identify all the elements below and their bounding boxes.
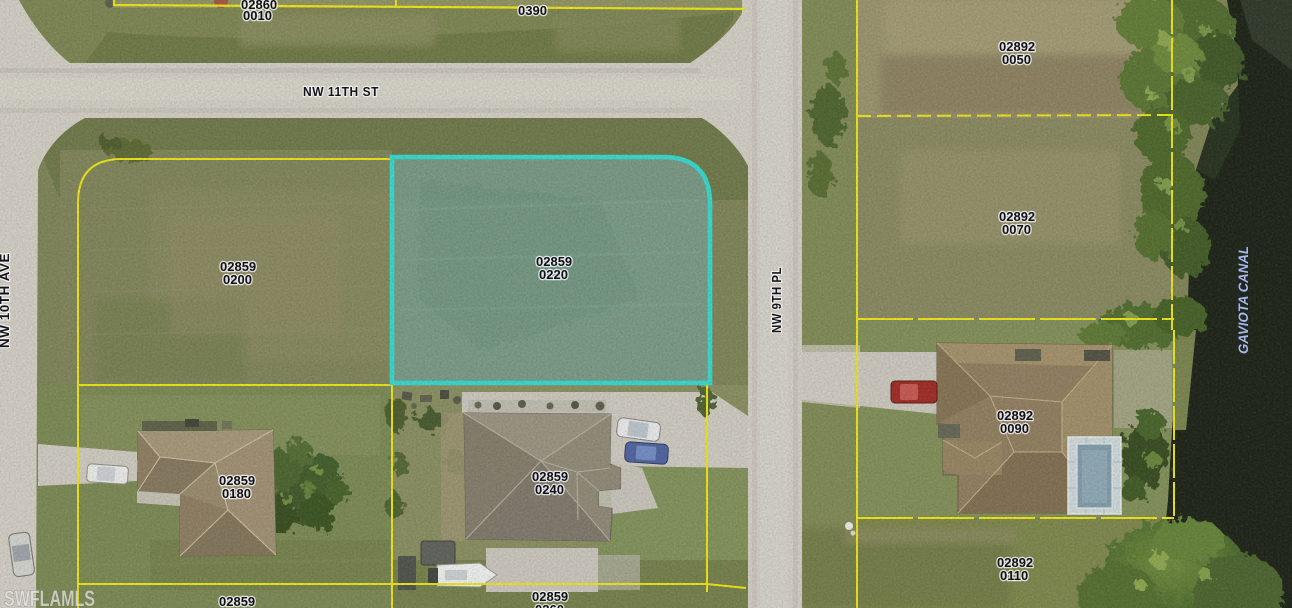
- svg-text:02859: 02859: [219, 594, 255, 608]
- svg-text:NW 11TH ST: NW 11TH ST: [303, 84, 379, 99]
- svg-text:0110: 0110: [1000, 568, 1028, 583]
- svg-text:SWFLAMLS: SWFLAMLS: [4, 586, 95, 608]
- svg-text:0390: 0390: [518, 3, 547, 18]
- svg-text:NW 9TH PL: NW 9TH PL: [769, 267, 784, 333]
- svg-text:0010: 0010: [243, 8, 272, 23]
- svg-text:GAVIOTA CANAL: GAVIOTA CANAL: [1235, 246, 1251, 354]
- svg-text:0220: 0220: [539, 267, 568, 282]
- svg-text:0050: 0050: [1002, 52, 1031, 67]
- svg-text:0200: 0200: [223, 272, 252, 287]
- svg-text:0090: 0090: [1000, 421, 1029, 436]
- svg-text:NW 10TH AVE: NW 10TH AVE: [0, 253, 12, 348]
- svg-text:0070: 0070: [1002, 222, 1031, 237]
- svg-text:0180: 0180: [222, 486, 251, 501]
- svg-text:0260: 0260: [535, 602, 564, 608]
- svg-text:0240: 0240: [535, 482, 564, 497]
